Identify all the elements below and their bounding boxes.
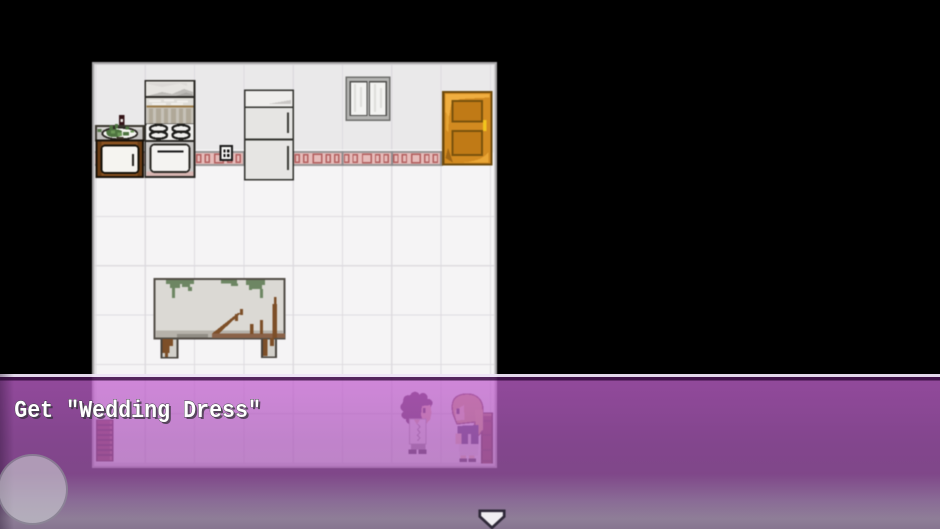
svg-text:Get "Wedding Dress": Get "Wedding Dress"	[14, 397, 261, 424]
